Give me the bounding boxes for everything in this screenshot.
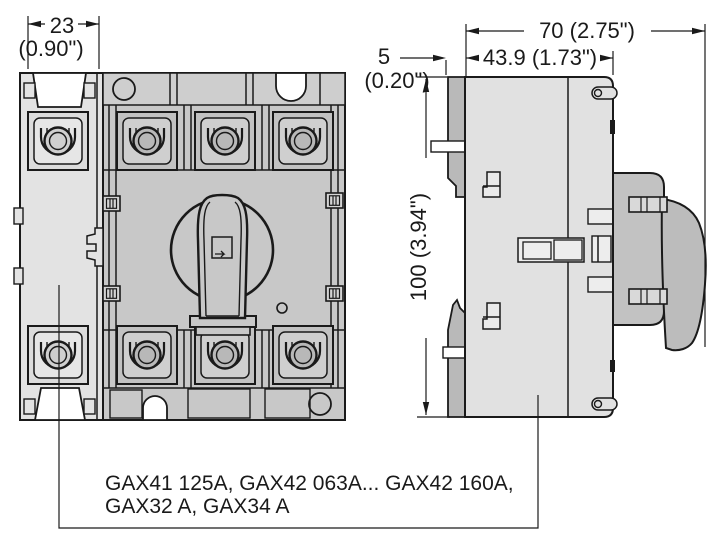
body-bottom-notch [143, 396, 167, 420]
terminal-screw [28, 112, 88, 170]
side-view [431, 77, 706, 417]
rotary-handle-side [613, 173, 706, 350]
side-rivet-bottom [592, 398, 617, 410]
dim-pole-width-inch: (0.90") [18, 36, 83, 61]
terminal-screw [273, 112, 333, 170]
dimension-flange-depth: 5 (0.20") [364, 44, 446, 93]
terminal-screw [28, 326, 88, 384]
terminal-screw [273, 326, 333, 384]
terminal-screw [117, 112, 177, 170]
dimension-height: 100 (3.94") [406, 77, 450, 417]
side-rivet-top [592, 87, 617, 99]
dimensional-drawing: 23 (0.90") 5 (0.20") 70 (2.75") 43.9 (1.… [0, 0, 727, 545]
handle-label-window [212, 237, 232, 258]
handle-knob [662, 199, 706, 350]
dimension-body-depth: 43.9 (1.73") [466, 45, 613, 75]
handle-screw-tab [629, 289, 667, 304]
pole-bottom-notch [35, 388, 85, 420]
pole-top-notch [33, 73, 86, 107]
din-clip-tab [431, 141, 465, 152]
drawing-canvas: 23 (0.90") 5 (0.20") 70 (2.75") 43.9 (1.… [0, 0, 727, 545]
din-flange-top [448, 77, 465, 197]
front-view [14, 73, 345, 420]
dim-height: 100 (3.94") [406, 193, 431, 301]
body-top-notch [276, 73, 306, 101]
terminal-screw [117, 326, 177, 384]
caption-line2: GAX32 A, GAX34 A [105, 495, 289, 518]
mount-clip [103, 196, 120, 211]
terminal-screw [195, 112, 255, 170]
handle-screw-tab [629, 197, 667, 212]
dim-body-depth: 43.9 (1.73") [483, 45, 597, 70]
side-latch [518, 238, 584, 262]
dim-flange-mm: 5 [378, 44, 390, 69]
mount-clip [326, 193, 343, 208]
dim-total-depth: 70 (2.75") [539, 18, 635, 43]
mount-clip [103, 286, 120, 301]
caption-line1: GAX41 125A, GAX42 063A... GAX42 160A, [105, 472, 514, 495]
dimension-pole-width: 23 (0.90") [18, 13, 99, 69]
mount-clip [326, 286, 343, 301]
dim-pole-width-mm: 23 [50, 13, 74, 38]
dim-flange-inch: (0.20") [364, 68, 429, 93]
